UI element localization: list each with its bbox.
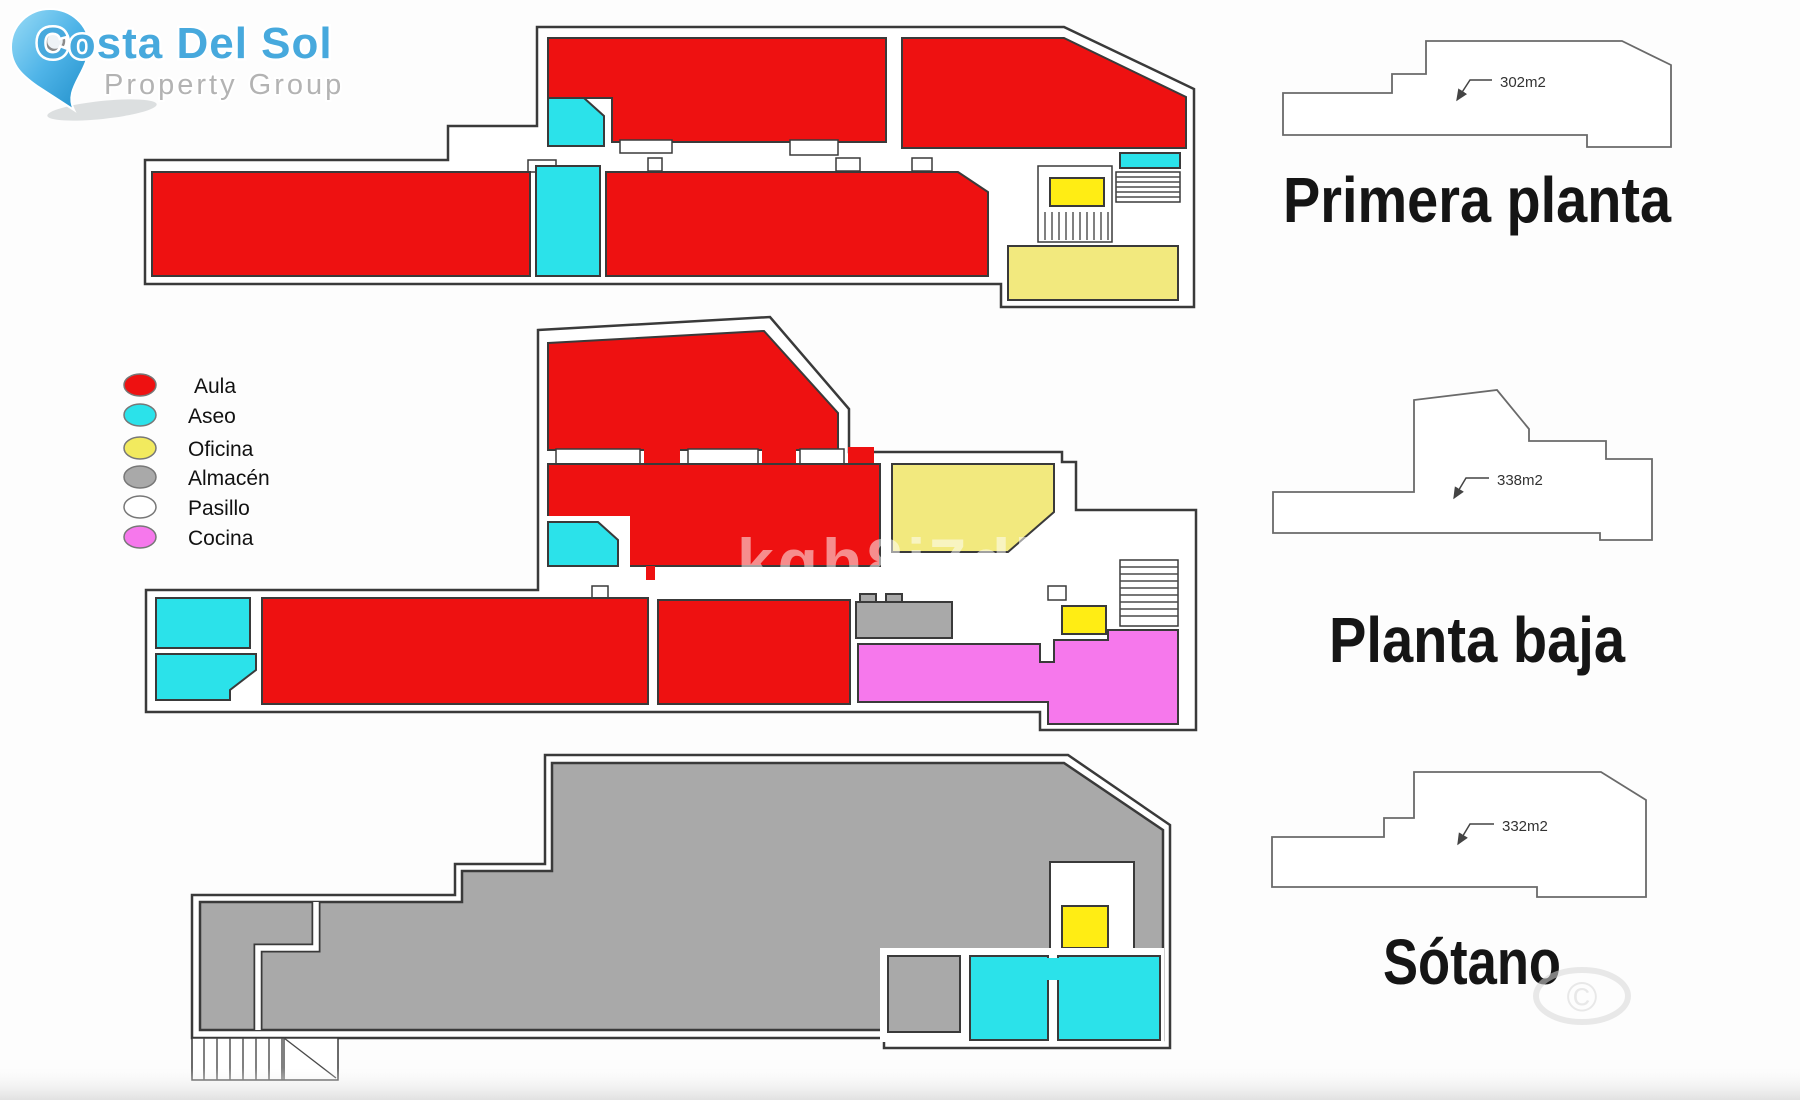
legend-item: Cocina: [124, 526, 254, 550]
plan1-aula-lower-left: [152, 172, 530, 276]
legend-label-almacen: Almacén: [188, 467, 270, 490]
floor-title-baja: Planta baja: [1329, 604, 1625, 676]
area-label-primera: 302m2: [1500, 74, 1546, 91]
plan1-aseo-strip: [1120, 153, 1180, 168]
legend-label-aula: Aula: [194, 375, 236, 398]
plan1-oficina-large: [1008, 246, 1178, 300]
plan3-oficina-small: [1062, 906, 1108, 948]
floorplan-canvas: Costa Del Sol Property Group Aula Aseo O…: [0, 0, 1800, 1100]
mini-outline-sotano: [1272, 772, 1646, 897]
plan1-wall-stub: [648, 158, 662, 171]
plan1-wall-stub: [836, 158, 860, 171]
mini-outline-baja: [1273, 390, 1652, 540]
plan2-wall-stub: [556, 449, 640, 464]
plan2-aseo-left-top: [156, 598, 250, 648]
plan1-oficina-small: [1050, 178, 1104, 206]
plan1-wall-stub: [620, 140, 672, 153]
floorplan-page: Costa Del Sol Property Group Aula Aseo O…: [0, 0, 1800, 1100]
plan1-stairs-upper: [1116, 172, 1180, 202]
legend-swatch-oficina: [124, 437, 156, 459]
legend-swatch-cocina: [124, 526, 156, 548]
plan2-wall-stub: [800, 449, 844, 464]
plan1-aseo-lower: [536, 166, 600, 276]
plan2-almacen: [856, 602, 952, 638]
area-label-baja: 338m2: [1497, 472, 1543, 489]
floor-title-sotano: Sótano: [1383, 926, 1561, 998]
plan2-stairs: [1120, 560, 1178, 626]
mini-plan-primera: 302m2 Primera planta: [1283, 41, 1671, 236]
mini-plan-baja: 338m2 Planta baja: [1273, 390, 1652, 676]
legend-label-aseo: Aseo: [188, 405, 236, 428]
plan2-wall-stub: [688, 449, 758, 464]
legend-item: Aseo: [124, 404, 236, 428]
plan1-aula-upper-right: [902, 38, 1186, 148]
legend-swatch-pasillo: [124, 496, 156, 518]
legend-item: Aula: [124, 374, 236, 398]
plan2-aula-lower-right: [658, 600, 850, 704]
floor-title-primera: Primera planta: [1283, 164, 1671, 236]
copyright-symbol: ©: [1567, 973, 1598, 1020]
plan3-aseo-left: [970, 956, 1048, 1040]
legend-swatch-aula: [124, 374, 156, 396]
logo-title: Costa Del Sol: [36, 19, 333, 68]
plan2-aula-lower-left: [262, 598, 648, 704]
logo-subtitle: Property Group: [104, 69, 344, 101]
legend-label-oficina: Oficina: [188, 438, 254, 461]
bottom-edge-fade: [0, 1068, 1800, 1100]
plan1-wall-stub: [790, 140, 838, 155]
mini-plan-sotano: 332m2 Sótano: [1272, 772, 1646, 998]
legend: Aula Aseo Oficina Almacén Pasillo Cocina: [124, 374, 270, 550]
plan-planta-baja: [146, 317, 1196, 730]
legend-item: Almacén: [124, 466, 270, 490]
legend-swatch-aseo: [124, 404, 156, 426]
mini-outline-primera: [1283, 41, 1671, 147]
area-label-sotano: 332m2: [1502, 818, 1548, 835]
legend-item: Oficina: [124, 437, 254, 461]
plan-sotano: [192, 755, 1170, 1080]
legend-label-pasillo: Pasillo: [188, 497, 250, 520]
plan2-oficina-small: [1062, 606, 1106, 634]
plan1-aula-lower-middle: [606, 172, 988, 276]
legend-swatch-almacen: [124, 466, 156, 488]
plan2-wall-tab: [646, 566, 655, 580]
plan3-door-opening: [1044, 958, 1062, 980]
plan3-aseo-right: [1058, 956, 1160, 1040]
legend-label-cocina: Cocina: [188, 527, 254, 550]
legend-item: Pasillo: [124, 496, 250, 520]
plan3-almacen-small: [888, 956, 960, 1032]
plan1-wall-stub: [912, 158, 932, 171]
watermark-text: kgh8i7dbh: [737, 525, 1103, 599]
logo: Costa Del Sol Property Group: [11, 9, 344, 125]
